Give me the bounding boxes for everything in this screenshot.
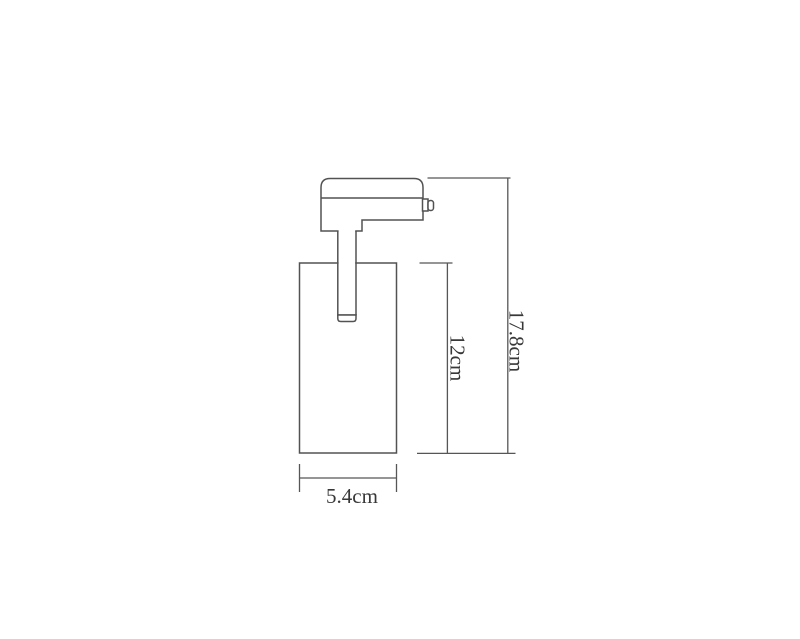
stem-mask — [339, 230, 356, 322]
dimension-drawing-canvas: 17.8cm 12cm 5.4cm — [0, 0, 800, 639]
fixture-head — [321, 179, 423, 232]
track-connector-tab-inner — [423, 199, 429, 211]
track-light-dimension-diagram: 17.8cm 12cm 5.4cm — [0, 0, 800, 639]
stem-end-cap — [338, 315, 356, 322]
label-total-height: 17.8cm — [505, 310, 529, 372]
fixture-outline — [300, 179, 434, 454]
label-body-height: 12cm — [446, 335, 470, 382]
label-body-width: 5.4cm — [326, 484, 378, 508]
track-connector-tab-outer — [428, 201, 434, 211]
